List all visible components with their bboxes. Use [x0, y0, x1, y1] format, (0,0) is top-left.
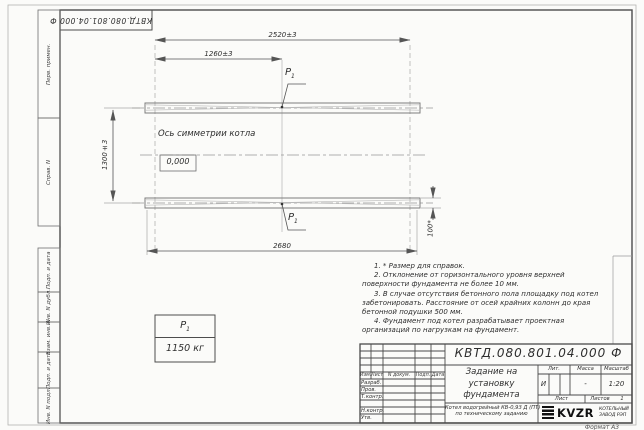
stamp-row-utv: Утв. [361, 415, 372, 421]
inner-frame [60, 10, 632, 423]
margin-field-perv-primen: Перв. примен. [38, 10, 60, 118]
stamp-upper-column [613, 256, 632, 344]
stamp-value-scale: 1:20 [601, 380, 632, 388]
stamp-row-prov: Пров. [361, 387, 376, 393]
margin-field-inv-podl: Инв. N подл. [38, 388, 60, 423]
stamp-value-lit: И [538, 380, 549, 388]
dim-1300: 1300±3 [99, 120, 111, 190]
margin-field-vzam-inv: Взам. инв. N [38, 322, 60, 352]
stamp-header-lit: Лит. [538, 366, 570, 372]
stamp-header-scale: Масштаб [601, 366, 632, 372]
stamp-row-razrab: Разраб. [361, 380, 381, 386]
stamp-header-mass: Масса [570, 366, 601, 372]
notes-block: 1. * Размер для справок. 2. Отклонение о… [362, 262, 602, 336]
dim-1260: 1260±3 [155, 50, 282, 58]
stamp-header-sheet: Лист [538, 396, 585, 402]
load-label-bottom: P1 [288, 212, 298, 225]
elevation-value: 0,000 [160, 157, 196, 166]
note-4: 4. Фундамент под котел разрабатывает про… [362, 317, 602, 335]
stamp-product: Котел водогрейный КВ-0,93 Д (ПТ) по техн… [445, 405, 538, 418]
margin-field-podp-data-2: Подп. и дата [38, 352, 60, 388]
stamp-designation: КВТД.080.801.04.000 Ф [447, 346, 630, 360]
stamp-header-list: Лист [371, 373, 383, 378]
dim-100: 100* [425, 212, 436, 246]
stamp-header-podp: Подп. [415, 373, 431, 378]
dimension-lines [113, 40, 433, 251]
symmetry-axis-label: Ось симметрии котла [158, 129, 255, 139]
stamp-value-sheets: 1 [615, 396, 629, 402]
load-label-top: P1 [285, 67, 295, 80]
centerlines [132, 108, 433, 203]
stamp-doc-title: Задание на установку фундамента [445, 367, 538, 402]
note-3: 3. В случае отсутствия бетонного пола пл… [362, 290, 602, 318]
drawing-sheet: КВТД.080.801.04.000 Ф Перв. примен. Спра… [0, 0, 644, 430]
margin-field-sprav-n: Справ. N [38, 118, 60, 226]
load-table-value: 1150 кг [155, 343, 215, 354]
axis-lines [104, 45, 441, 255]
kvzr-logo-text: KVZR [557, 406, 594, 420]
note-1: 1. * Размер для справок. [362, 262, 602, 271]
company-name: КОТЕЛЬНЫЙ ЗАВОД РЭП [599, 407, 632, 418]
top-designation-rotated: КВТД.080.801.04.000 Ф [60, 10, 152, 30]
format-label: Формат А3 [552, 424, 644, 430]
margin-field-inv-dubl: Инв. N дубл. [38, 292, 60, 322]
outer-border [8, 5, 636, 425]
stamp-row-tkontr: Т.контр. [361, 394, 383, 400]
stamp-header-ndoc: N докум. [383, 373, 415, 378]
load-table-symbol: P1 [155, 320, 215, 333]
stamp-header-data: Дата [431, 373, 445, 378]
stamp-header-sheets: Листов [585, 396, 615, 402]
dim-2520: 2520±3 [155, 31, 410, 39]
stamp-row-nkontr: Н.контр. [361, 408, 384, 414]
dim-2680: 2680 [147, 242, 417, 250]
stamp-header-izm: Изм. [360, 373, 371, 378]
margin-field-podp-data-1: Подп. и дата [38, 248, 60, 292]
stamp-value-mass: - [570, 380, 601, 388]
kvzr-logo-icon [542, 406, 554, 419]
note-2: 2. Отклонение от горизонтального уровня … [362, 271, 602, 289]
